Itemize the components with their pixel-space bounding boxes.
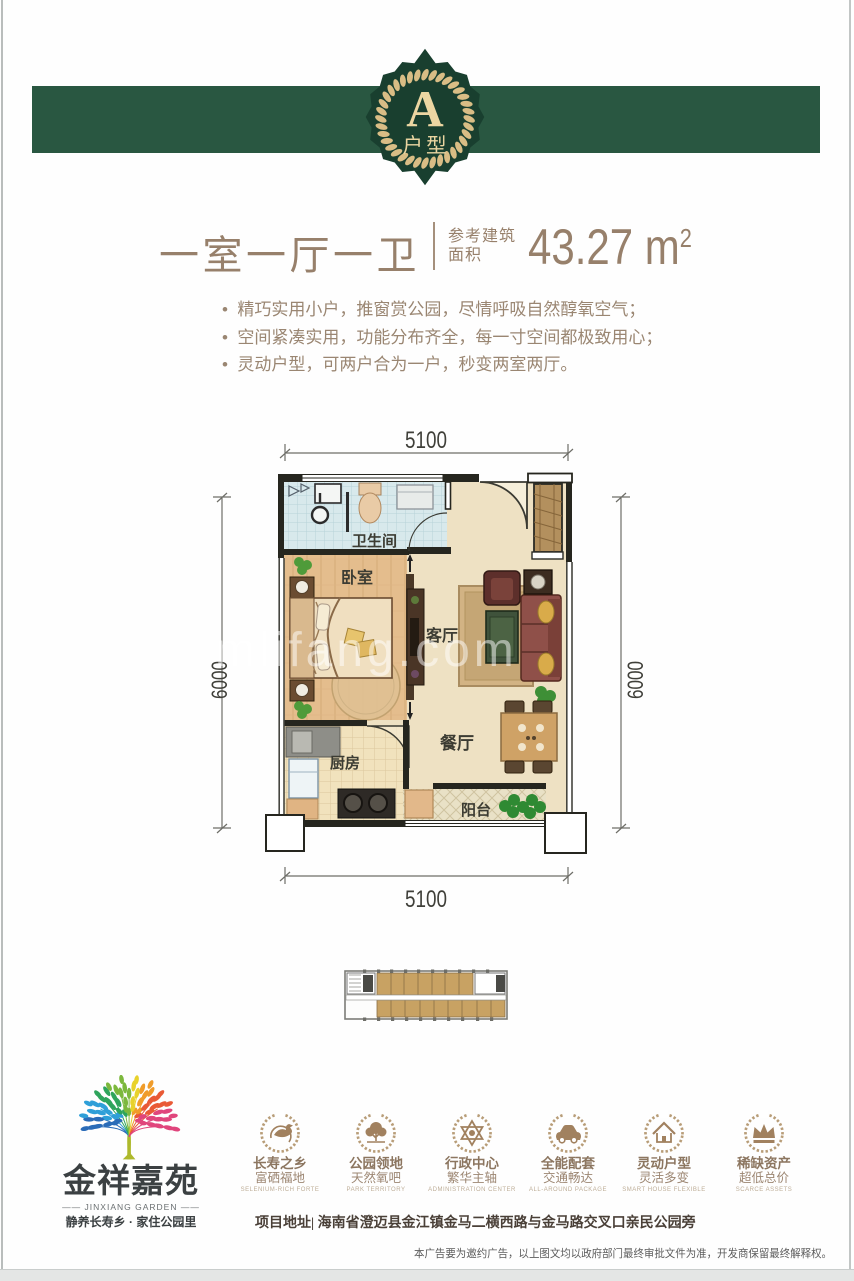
svg-text:餐厅: 餐厅	[440, 733, 474, 753]
svg-text:PARK TERRITORY: PARK TERRITORY	[347, 1187, 406, 1193]
svg-text:富硒福地: 富硒福地	[255, 1170, 306, 1185]
svg-text:ADMINISTRATION CENTER: ADMINISTRATION CENTER	[428, 1187, 516, 1193]
svg-text:灵活多变: 灵活多变	[639, 1170, 689, 1185]
svg-text:ALL-AROUND PACKAGE: ALL-AROUND PACKAGE	[529, 1187, 607, 1193]
svg-text:mlifang.com: mlifang.com	[215, 624, 518, 677]
svg-text:A: A	[406, 82, 444, 139]
svg-text:SCARCE ASSETS: SCARCE ASSETS	[736, 1187, 793, 1193]
svg-text:卧室: 卧室	[341, 568, 373, 587]
svg-text:6000: 6000	[623, 661, 648, 699]
svg-text:灵动户型: 灵动户型	[637, 1155, 691, 1171]
svg-text:5100: 5100	[405, 427, 447, 454]
svg-text:SELENIUM-RICH FORTE: SELENIUM-RICH FORTE	[241, 1187, 320, 1193]
svg-text:户型: 户型	[402, 135, 449, 158]
svg-text:行政中心: 行政中心	[444, 1155, 499, 1171]
svg-text:公园领地: 公园领地	[349, 1155, 403, 1171]
svg-text:阳台: 阳台	[461, 801, 491, 819]
svg-text:长寿之乡: 长寿之乡	[253, 1155, 307, 1171]
svg-text:卫生间: 卫生间	[352, 532, 397, 550]
svg-text:交通畅达: 交通畅达	[543, 1170, 594, 1185]
svg-text:天然氧吧: 天然氧吧	[351, 1170, 402, 1185]
svg-text:繁华主轴: 繁华主轴	[447, 1170, 497, 1185]
svg-text:全能配套: 全能配套	[540, 1155, 595, 1171]
svg-text:稀缺资产: 稀缺资产	[737, 1155, 791, 1171]
svg-text:厨房: 厨房	[330, 754, 360, 772]
svg-text:超低总价: 超低总价	[739, 1170, 790, 1185]
svg-text:5100: 5100	[405, 886, 447, 913]
svg-text:SMART HOUSE FLEXIBLE: SMART HOUSE FLEXIBLE	[622, 1187, 705, 1193]
